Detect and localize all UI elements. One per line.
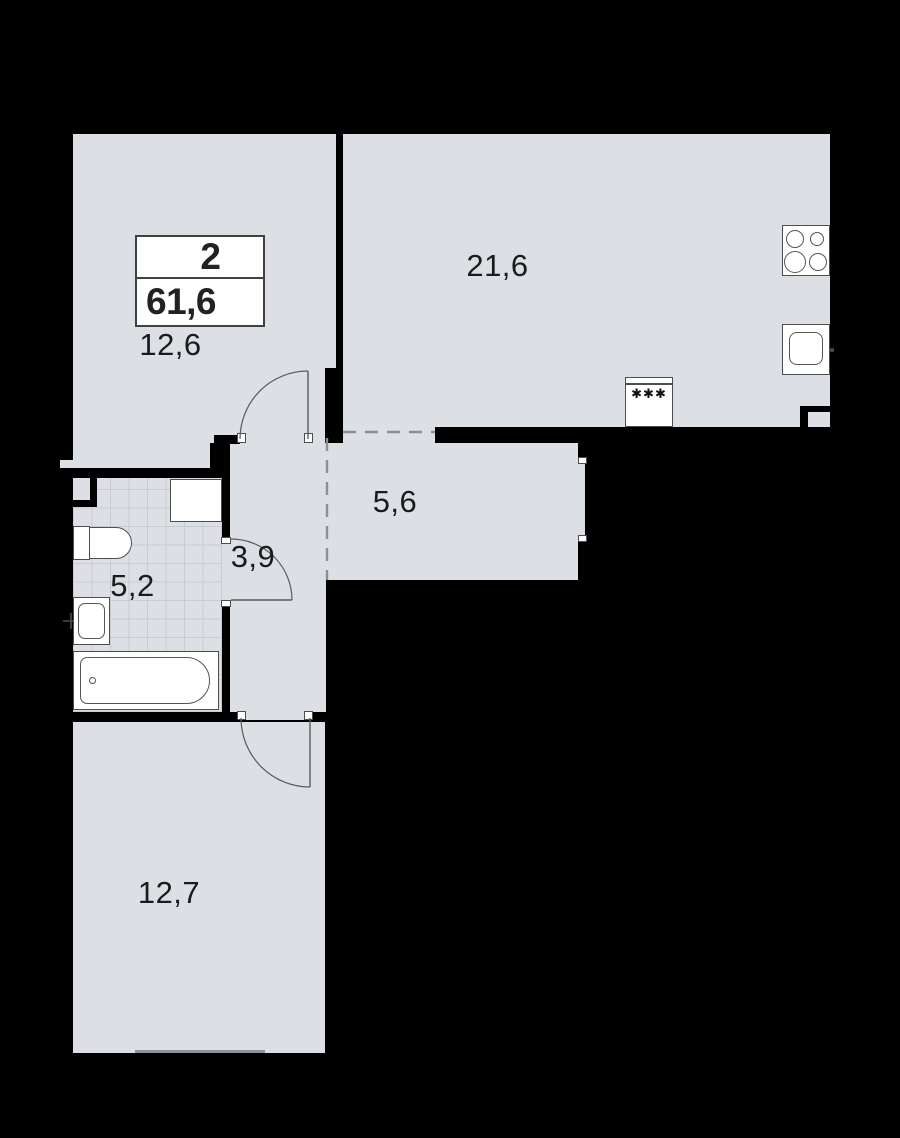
door-jamb xyxy=(221,600,231,607)
door-jamb xyxy=(237,433,246,443)
wall-kitchen-niche-vert xyxy=(800,406,808,427)
room-area-label-corridor: 5,6 xyxy=(355,484,435,520)
unit-total-area: 61,6 xyxy=(137,279,263,325)
room-area-label-bedroom-top: 12,6 xyxy=(128,327,213,363)
toilet-icon xyxy=(73,526,90,560)
door-jamb xyxy=(237,711,246,720)
room-area-label-bathroom: 5,2 xyxy=(95,568,170,604)
stove-burner xyxy=(784,251,806,273)
wall-bathroom-right-lower xyxy=(222,604,230,712)
wall-corner-bedroom-kitchen xyxy=(325,368,343,443)
wall-kitchen-niche-horiz xyxy=(808,406,830,412)
room-area-label-living-kitchen: 21,6 xyxy=(455,248,540,284)
door-jamb xyxy=(578,457,587,464)
wall-stub-hall xyxy=(210,443,230,468)
washing-machine-icon xyxy=(170,479,222,522)
wall-bathroom-top xyxy=(60,468,230,478)
sink-basin xyxy=(789,332,823,365)
fridge-top-line xyxy=(626,383,672,385)
stove-burner xyxy=(810,232,824,246)
unit-info-card: 2 61,6 xyxy=(135,235,265,327)
doorway-entrance xyxy=(578,463,585,537)
wall-left-lower xyxy=(60,712,73,1060)
wall-bedroom-bottom-right xyxy=(325,712,343,1060)
toilet-bowl xyxy=(89,527,132,559)
door-jamb xyxy=(304,433,313,443)
bathroom-nook-floor xyxy=(73,478,90,500)
doorway-bedroom-top xyxy=(246,435,305,444)
wall-right-kitchen xyxy=(830,128,843,433)
bathtub-icon xyxy=(73,651,219,710)
wall-corridor-bottom xyxy=(326,580,592,596)
wall-nook-bottom xyxy=(73,500,97,507)
door-jamb xyxy=(304,711,313,720)
kitchen-sink-icon xyxy=(782,324,830,375)
hall-floor xyxy=(230,443,326,717)
wall-bathroom-right-upper xyxy=(222,478,230,540)
basin-icon xyxy=(73,597,110,645)
wall-bedroom-bottom-bottom xyxy=(73,1053,343,1060)
bathtub-inner xyxy=(80,657,210,704)
stove-burner xyxy=(809,253,827,271)
fridge-icon: ✱✱✱ xyxy=(625,377,673,427)
kitchen-niche-floor xyxy=(808,412,830,427)
wall-bathroom-bottom xyxy=(60,712,240,722)
room-area-label-hall: 3,9 xyxy=(218,539,288,575)
wall-left-upper xyxy=(60,128,73,460)
stove-icon xyxy=(782,225,830,276)
floor-plan: ✱✱✱ 2 61,6 12,6 21,6 5,6 3,9 5,2 12,7 xyxy=(0,0,900,1138)
unit-room-count: 2 xyxy=(137,237,263,279)
room-area-label-bedroom-bottom: 12,7 xyxy=(125,875,213,911)
wall-left-middle xyxy=(60,478,73,712)
basin-bowl xyxy=(78,603,105,639)
fridge-snowflakes: ✱✱✱ xyxy=(626,387,672,402)
stove-burner xyxy=(786,230,804,248)
wall-kitchen-bottom xyxy=(435,427,578,443)
bathtub-drain xyxy=(89,677,96,684)
room-bedroom-top-floor-ext xyxy=(73,443,214,468)
wall-top xyxy=(73,128,843,134)
room-living-kitchen-floor xyxy=(343,134,830,427)
doorway-bedroom-bottom xyxy=(246,712,305,720)
door-jamb xyxy=(578,535,587,542)
wall-between-bedroom-kitchen xyxy=(336,134,343,374)
